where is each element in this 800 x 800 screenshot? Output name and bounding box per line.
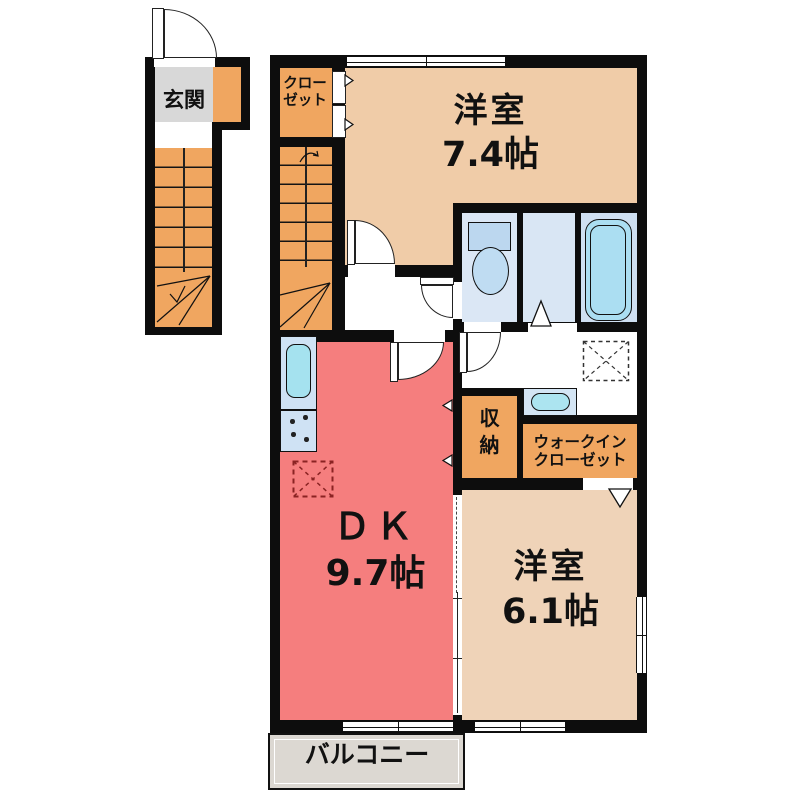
- interior-door-arc: [421, 285, 453, 318]
- shoe-cabinet: [213, 67, 241, 122]
- winder-lines: [155, 272, 212, 327]
- room1-door-leaf: [347, 220, 355, 265]
- balcony-label: バルコニー: [272, 741, 462, 770]
- wic-label: ウォークインクローゼット: [518, 434, 642, 470]
- stove-icon: [280, 410, 317, 452]
- basin-bottom-wall: [523, 416, 577, 424]
- interior-door-arc: [467, 332, 501, 372]
- window: [343, 721, 453, 732]
- outer-wall-left: [270, 55, 280, 733]
- dk-door-leaf: [390, 342, 398, 382]
- refrigerator-space-marker: [292, 460, 334, 498]
- closet-door-arrow: [441, 398, 454, 413]
- washbasin-icon: [531, 393, 570, 411]
- genkan-label: 玄関: [154, 88, 214, 112]
- washroom-door-gap: [464, 322, 501, 332]
- sanitary-top-wall: [453, 203, 647, 213]
- laundry-space-marker: [582, 340, 630, 382]
- entry-door-leaf: [152, 8, 164, 59]
- folding-door-triangle: [529, 299, 553, 329]
- toilet-door-gap: [453, 282, 462, 319]
- entry-door-arc: [164, 9, 217, 58]
- floor-plan: 玄関 バルコニー: [0, 0, 800, 800]
- closet-label: クローゼット: [277, 76, 333, 109]
- room1-door-gap: [348, 264, 395, 278]
- bathtub-inner-line: [590, 225, 626, 315]
- storage-top-wall: [453, 388, 523, 396]
- room1-label: 洋室 7.4帖: [398, 92, 583, 175]
- washroom-bath-divider: [575, 213, 581, 322]
- dk-label: ＤＫ 9.7帖: [293, 506, 458, 594]
- partition-top-stub: [453, 478, 462, 495]
- wic-top-wall: [577, 415, 637, 424]
- entry-door-gap: [154, 58, 215, 67]
- room2-label: 洋室 6.1帖: [458, 548, 643, 632]
- entry-landing: [155, 122, 212, 148]
- washroom-door-leaf: [459, 332, 467, 373]
- closet-door-arrow: [343, 117, 355, 132]
- closet-door-arrow: [343, 73, 355, 88]
- toilet-icon: [472, 247, 509, 295]
- toilet-washroom-divider: [517, 213, 523, 322]
- toilet-door-leaf: [420, 277, 454, 285]
- sliding-partition-tick: [453, 658, 462, 659]
- closet-door-arrow: [441, 453, 454, 468]
- folding-door-triangle: [607, 487, 633, 509]
- stairs-up-arrow: [296, 146, 324, 166]
- storage-label: 収納: [463, 405, 516, 459]
- window: [475, 721, 565, 732]
- winder-lines: [278, 267, 332, 330]
- kitchen-sink-icon: [286, 344, 311, 398]
- dk-door-gap: [394, 330, 445, 342]
- window: [347, 56, 505, 67]
- partition-bottom-stub: [453, 715, 462, 733]
- stair-center-line: [183, 148, 185, 272]
